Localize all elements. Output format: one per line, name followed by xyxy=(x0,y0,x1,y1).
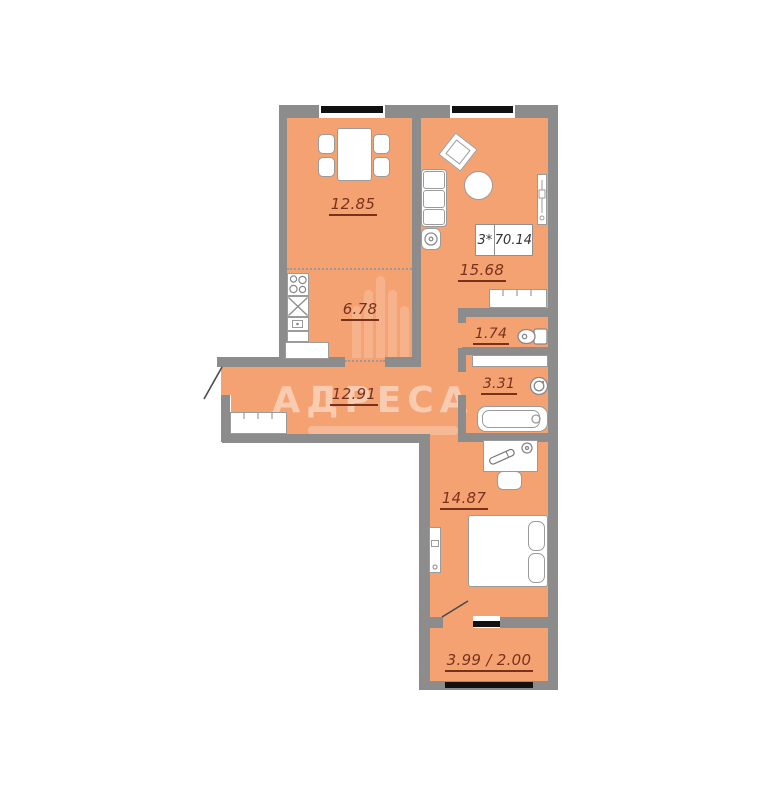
desk-lamp-icon xyxy=(522,443,532,453)
room-label-dining: 12.85 xyxy=(298,195,408,213)
room-label-kitchen: 6.78 xyxy=(305,300,415,318)
balcony-door-icon xyxy=(442,601,468,617)
wardrobe-ticks xyxy=(244,413,272,419)
floorplan-canvas: АДРЕСА xyxy=(0,0,767,800)
room-label-bedroom: 14.87 xyxy=(409,489,519,507)
room-label-hallway: 12.91 xyxy=(299,385,409,403)
radiator-detail xyxy=(539,180,545,220)
rooms-count: 3* xyxy=(476,225,495,255)
total-area-box: 3* 70.14 xyxy=(475,224,533,256)
total-area-value: 70.14 xyxy=(495,225,532,255)
room-label-bathroom: 3.31 xyxy=(444,376,554,392)
tv-unit-dot xyxy=(433,565,437,569)
bathtub-drain xyxy=(532,415,540,423)
speaker-rings xyxy=(425,233,437,245)
sideboard-ticks xyxy=(503,290,531,296)
room-label-living: 15.68 xyxy=(427,261,537,279)
entrance-door-icon xyxy=(204,367,222,399)
stove-burners xyxy=(290,276,306,293)
desk-pen-icon xyxy=(489,449,515,466)
oven-dot xyxy=(296,323,299,326)
room-label-balcony: 3.99 / 2.00 xyxy=(434,651,544,669)
room-label-wc: 1.74 xyxy=(436,326,546,342)
